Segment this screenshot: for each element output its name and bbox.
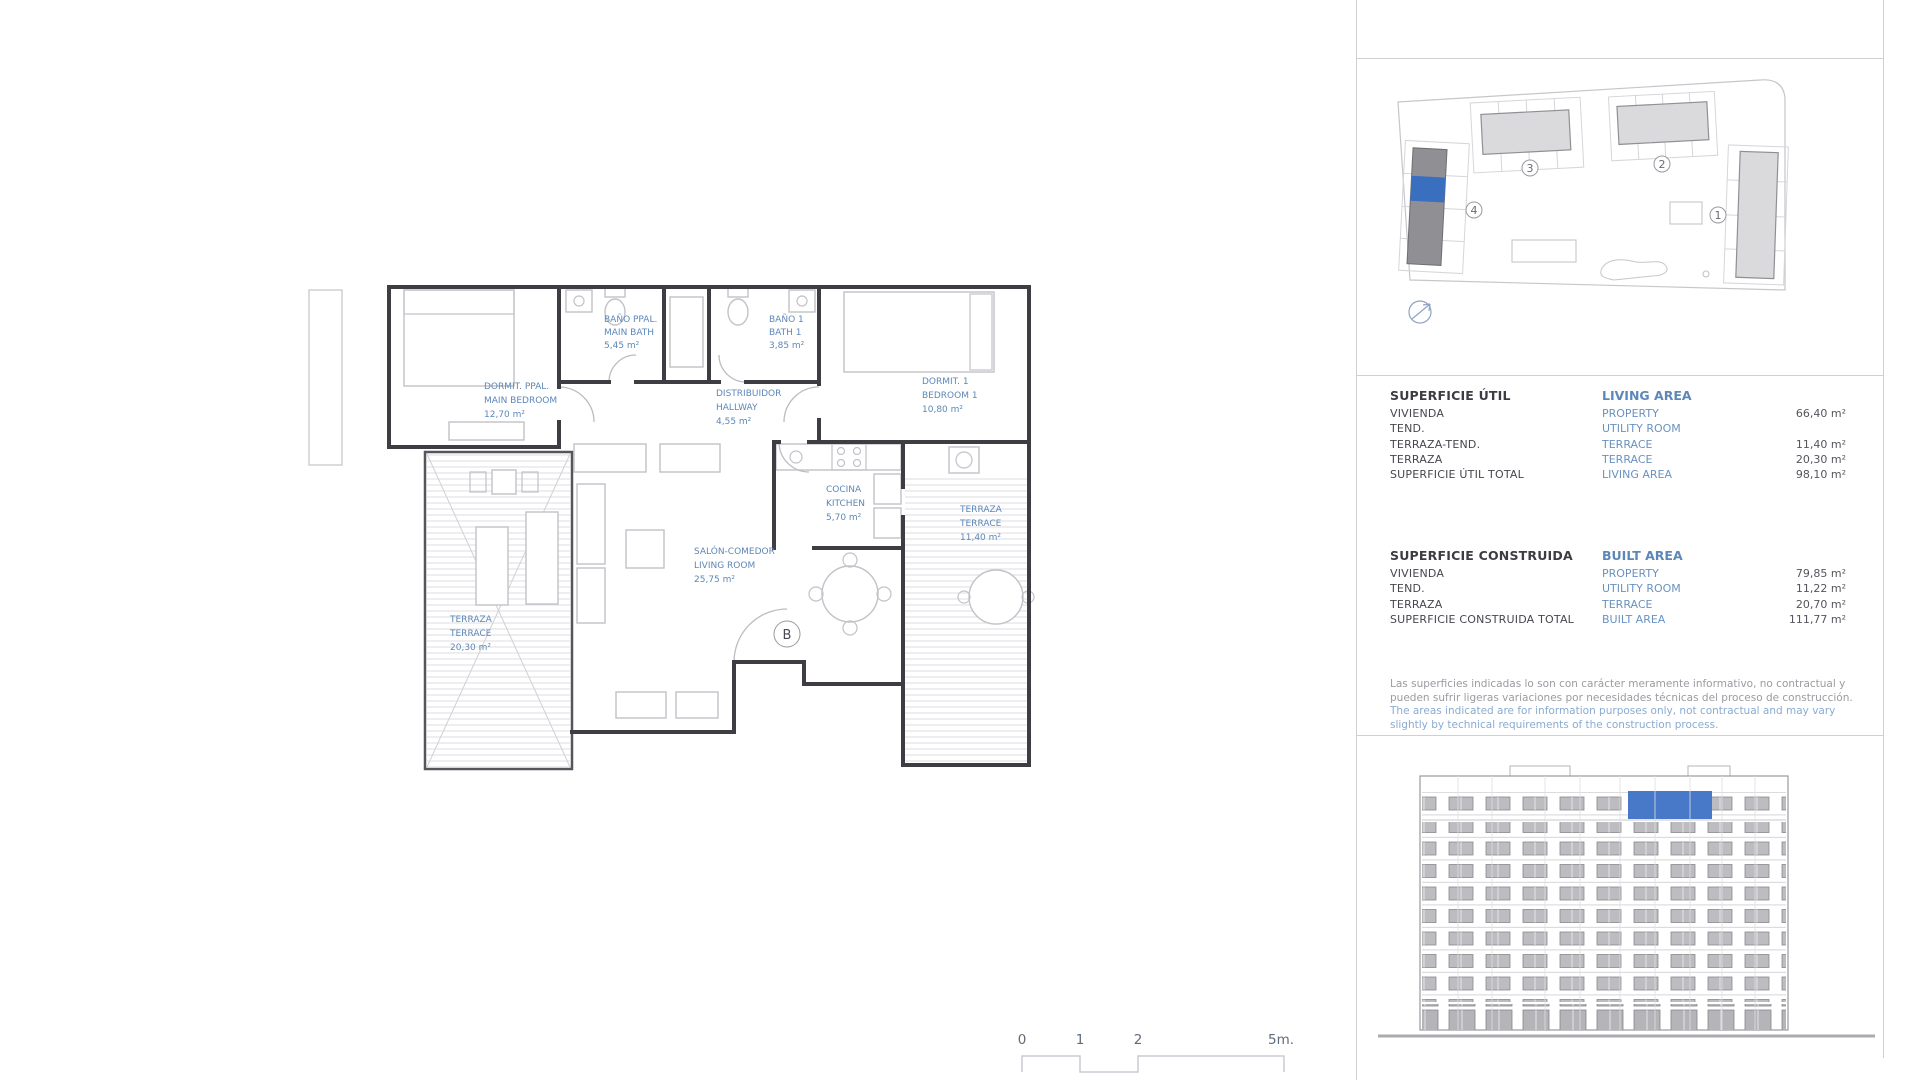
table-row: TERRAZA-TEND. TERRACE 11,40 m² [1390,437,1846,452]
svg-text:25,75 m²: 25,75 m² [694,575,735,585]
living-title-es: SUPERFICIE ÚTIL [1390,387,1602,404]
utility-washer [949,447,979,473]
site-landscape [1601,260,1667,280]
area-tables-section: SUPERFICIE ÚTIL LIVING AREA VIVIENDA PRO… [1356,375,1883,735]
svg-text:MAIN BEDROOM: MAIN BEDROOM [484,396,557,406]
hall-closet [670,297,703,367]
north-arrow-icon [1409,301,1431,323]
table-row: VIVIENDA PROPERTY 66,40 m² [1390,406,1846,421]
scale-0: 0 [1018,1032,1027,1048]
site-building-4 [1399,140,1470,273]
svg-text:11,40 m²: 11,40 m² [960,533,1001,543]
site-label-3: 3 [1527,162,1534,175]
svg-text:3,85 m²: 3,85 m² [769,341,805,351]
neighbour-structure [309,290,342,465]
table-row: TERRAZA TERRACE 20,70 m² [1390,597,1846,612]
svg-text:LIVING ROOM: LIVING ROOM [694,561,755,571]
svg-text:KITCHEN: KITCHEN [826,499,865,509]
site-dot [1703,271,1709,277]
bath1-toilet [728,299,748,325]
site-label-2: 2 [1659,158,1666,171]
svg-text:BATH 1: BATH 1 [769,328,801,338]
site-label-4: 4 [1471,204,1478,217]
svg-text:TERRACE: TERRACE [449,629,492,639]
roof-structure-1 [1510,766,1570,777]
table-row: TERRAZA TERRACE 20,30 m² [1390,452,1846,467]
bedroom1-bed [844,292,994,372]
floor-plan-drawing: B DORMIT. PPAL. MAIN BEDROOM 12,70 m² BA… [304,272,1074,797]
table-row: SUPERFICIE ÚTIL TOTAL LIVING AREA 98,10 … [1390,467,1846,482]
panel-divider-tables [1356,735,1883,736]
floor-plan: B DORMIT. PPAL. MAIN BEDROOM 12,70 m² BA… [304,272,1074,797]
main-bath-sink [566,290,592,312]
living-area-table: SUPERFICIE ÚTIL LIVING AREA VIVIENDA PRO… [1390,387,1846,482]
main-bed [404,290,514,386]
sofa-1 [577,484,605,564]
coffee-table [626,530,664,568]
roof-structure-2 [1688,766,1730,777]
living-title-en: LIVING AREA [1602,387,1754,404]
table-row: SUPERFICIE CONSTRUIDA TOTAL BUILT AREA 1… [1390,612,1846,627]
disclaimer-en: The areas indicated are for information … [1390,705,1858,732]
label-terrace-right: TERRAZA [959,505,1003,515]
site-amenity [1512,240,1576,262]
site-building-1 [1724,145,1789,285]
table-row: VIVIENDA PROPERTY 79,85 m² [1390,566,1846,581]
lounger-2 [526,512,558,604]
scale-1: 1 [1076,1032,1085,1048]
table-row: TEND. UTILITY ROOM [1390,421,1846,436]
svg-text:20,30 m²: 20,30 m² [450,643,491,653]
kitchen-appliance-1 [874,474,901,504]
kitchen-appliance-2 [874,508,901,538]
built-title-es: SUPERFICIE CONSTRUIDA [1390,547,1602,564]
unit-letter: B [783,628,792,643]
label-main-bedroom: DORMIT. PPAL. [484,382,549,392]
bath1-sink [789,290,815,312]
svg-text:4,55 m²: 4,55 m² [716,417,752,427]
site-plan: 4 3 2 1 [1370,50,1900,362]
sofa-2 [577,568,605,623]
built-area-table: SUPERFICIE CONSTRUIDA BUILT AREA VIVIEND… [1390,547,1846,627]
highlighted-unit [1628,791,1712,819]
svg-text:HALLWAY: HALLWAY [716,403,758,413]
scale-bar: 0 1 2 5m. [1000,1028,1300,1080]
disclaimer-es: Las superficies indicadas lo son con car… [1390,678,1858,705]
svg-text:MAIN BATH: MAIN BATH [604,328,654,338]
label-bath1: BAÑO 1 [769,314,804,325]
built-title-en: BUILT AREA [1602,547,1754,564]
label-kitchen: COCINA [826,485,862,495]
site-building-2 [1608,91,1717,160]
scale-2: 2 [1134,1032,1143,1048]
label-terrace-left: TERRAZA [449,615,493,625]
svg-text:TERRACE: TERRACE [959,519,1002,529]
label-hallway: DISTRIBUIDOR [716,389,781,399]
main-bedroom-closet [449,422,524,440]
wardrobe-2 [660,444,720,472]
table-row: TEND. UTILITY ROOM 11,22 m² [1390,581,1846,596]
ground-floor-windows [1422,1004,1786,1030]
label-bedroom1: DORMIT. 1 [922,377,969,387]
label-living: SALÓN-COMEDOR [694,545,775,557]
label-main-bath: BAÑO PPAL. [604,314,657,325]
scale-bar-line [1022,1056,1284,1072]
terrace-bistro-table [492,470,516,494]
svg-text:5,45 m²: 5,45 m² [604,341,640,351]
tv-bench-2 [676,692,718,718]
typical-floor-windows [1422,822,1786,1002]
site-label-1: 1 [1715,209,1722,222]
svg-text:12,70 m²: 12,70 m² [484,410,525,420]
wardrobe-1 [574,444,646,472]
scale-5m: 5m. [1268,1032,1294,1048]
terrace-table [969,570,1023,624]
building-elevation [1370,748,1900,1080]
svg-text:10,80 m²: 10,80 m² [922,405,963,415]
svg-text:BEDROOM 1: BEDROOM 1 [922,391,978,401]
dining-table [822,566,878,622]
selected-unit-highlight [1410,176,1445,203]
tv-bench-1 [616,692,666,718]
site-pool [1670,202,1702,224]
lounger-1 [476,527,508,605]
disclaimer: Las superficies indicadas lo son con car… [1390,678,1858,732]
svg-text:5,70 m²: 5,70 m² [826,513,862,523]
attic-floor-windows [1422,792,1786,818]
